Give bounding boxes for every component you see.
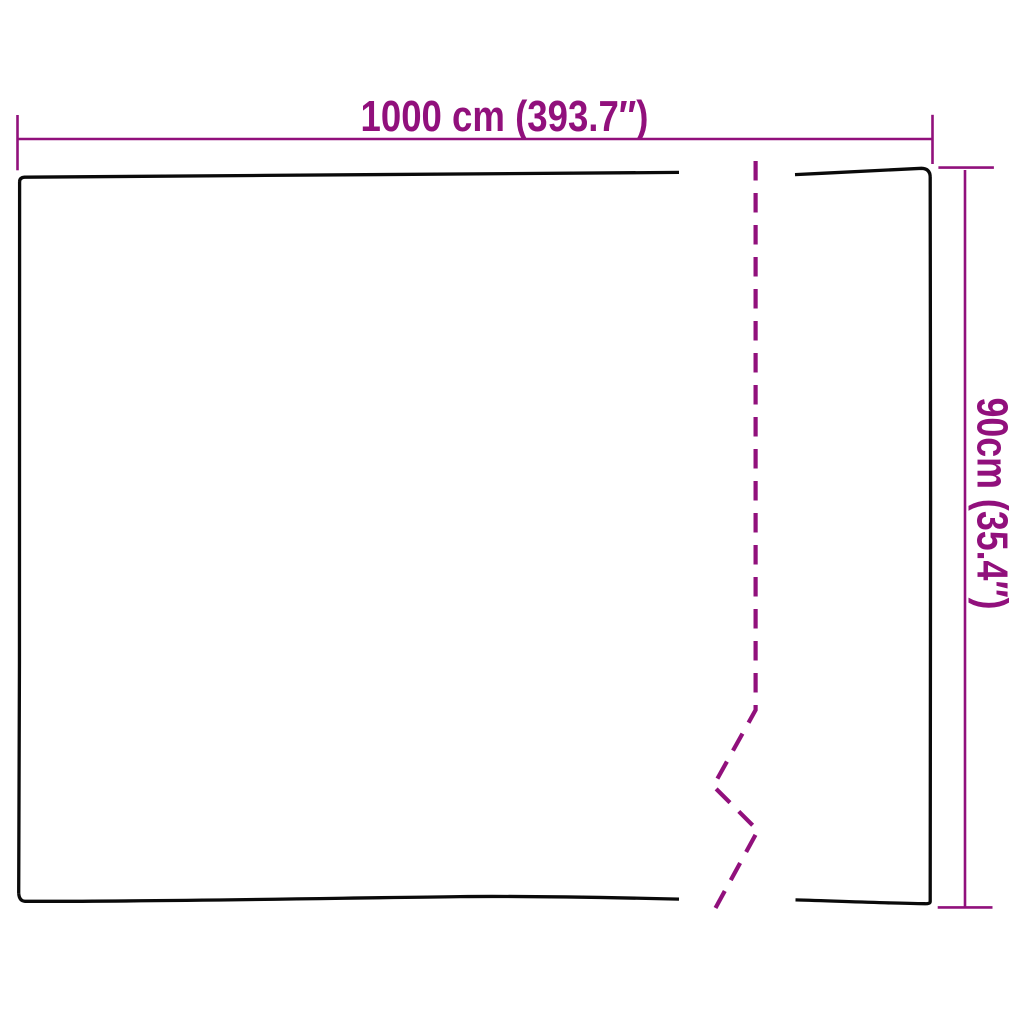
svg-text:1000 cm (393.7″): 1000 cm (393.7″) bbox=[361, 92, 649, 141]
svg-text:90cm (35.4″): 90cm (35.4″) bbox=[968, 398, 1017, 610]
